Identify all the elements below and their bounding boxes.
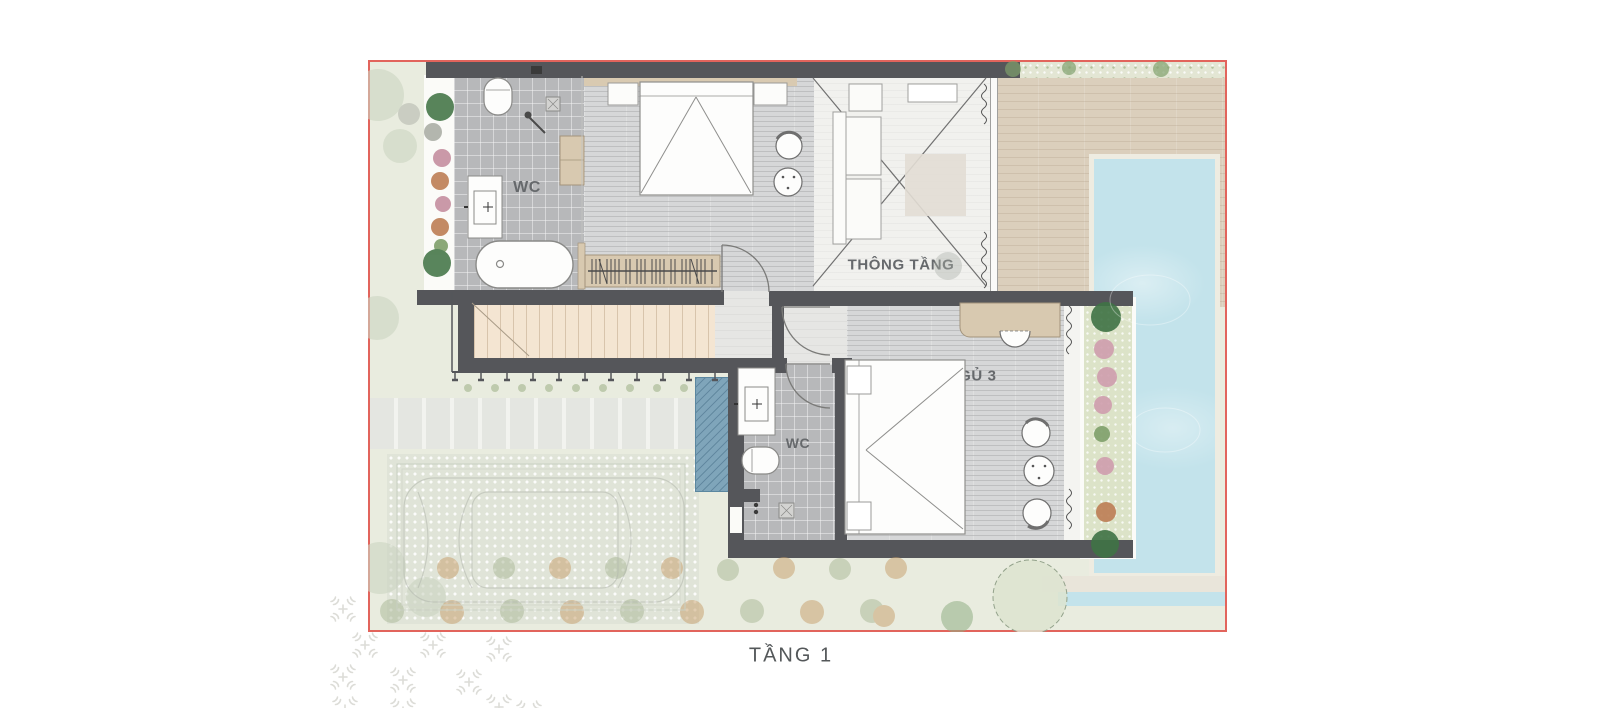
planter-right (1084, 302, 1132, 554)
wall-shower-stub (728, 489, 760, 502)
pool-overflow-channel (1058, 592, 1227, 606)
floor-plan-page: WC P. NGỦ 2 THÔNG TẦNG P. NGỦ 3 WC (0, 0, 1600, 708)
pool-coping (1042, 576, 1227, 592)
bedroom-2-headboard-wall (584, 78, 797, 86)
wall-mid-east (769, 291, 1133, 306)
hallway-lower (774, 306, 847, 364)
wall-stair-south (458, 358, 787, 373)
staircase (474, 304, 715, 359)
room-label-wc-bedroom-3: WC (786, 435, 811, 451)
room-label-bedroom-3: P. NGỦ 3 (929, 368, 996, 385)
wall-hall-stub (772, 306, 784, 362)
water-feature (695, 377, 730, 492)
floor-plan: WC P. NGỦ 2 THÔNG TẦNG P. NGỦ 3 WC (368, 60, 1227, 632)
room-label-wc-master: WC (513, 179, 541, 197)
bedroom-3-window-strip (1064, 306, 1080, 540)
wall-lower-south (728, 540, 1133, 558)
floor-caption: TẦNG 1 (749, 645, 833, 668)
wall-top (426, 62, 1020, 78)
wall-niche (730, 507, 742, 533)
deck-planting-strip (1020, 62, 1227, 78)
bedroom-3-floor (847, 306, 1064, 540)
wc-bedroom-3-floor (742, 364, 835, 540)
glass-wall (990, 77, 998, 292)
wall-wc3-east (835, 364, 847, 540)
parking-pavers (387, 454, 699, 624)
room-label-void: THÔNG TẦNG (848, 257, 955, 274)
wall-stair-west (458, 301, 474, 364)
room-label-bedroom-2: P. NGỦ 2 (658, 180, 725, 197)
driveway (370, 398, 696, 449)
